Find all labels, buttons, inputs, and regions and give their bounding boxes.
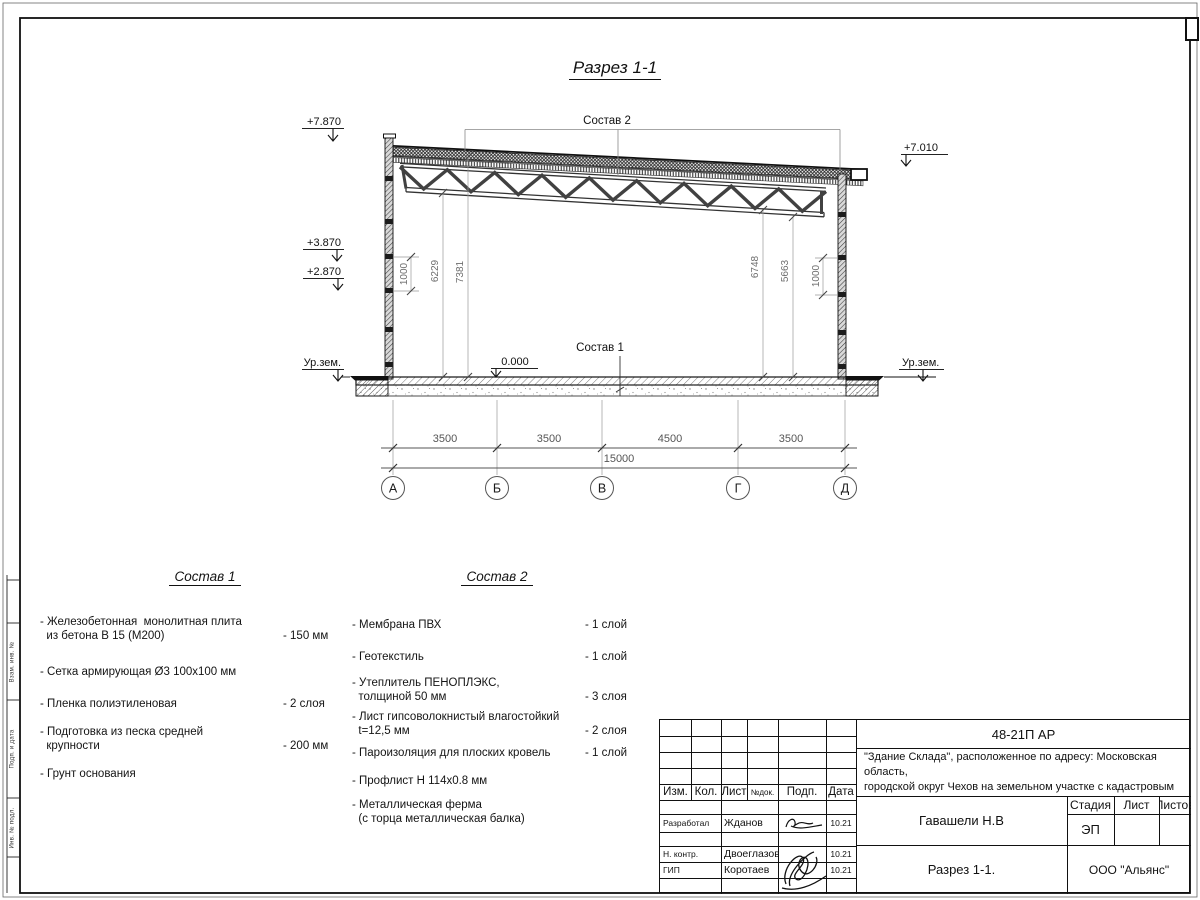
roof-edge-beam	[851, 169, 867, 180]
svg-text:+3.870: +3.870	[307, 237, 341, 249]
callout-floor-label: Состав 1	[576, 342, 624, 354]
strip-label-vzam-inv: Взам. инв. №	[5, 623, 19, 700]
floor-slab	[356, 377, 878, 396]
stage-value: ЭП	[1067, 814, 1114, 845]
company-name: ООО "Альянс"	[1067, 845, 1191, 894]
strip-label-podp-data: Подп. и дата	[5, 700, 19, 798]
list-item: - Утеплитель ПЕНОПЛЭКС, толщиной 50 мм -…	[352, 676, 664, 704]
signer-role: ГИП	[663, 862, 721, 878]
rev-header-data: Дата	[826, 784, 856, 800]
span-dim-3: 4500	[658, 433, 682, 445]
left-wall	[384, 134, 396, 379]
svg-text:+7.870: +7.870	[307, 116, 341, 128]
axis-label-a: А	[389, 482, 398, 496]
drawing-title: Разрез 1-1	[540, 58, 690, 78]
list-item: - Железобетонная монолитная плита из бет…	[40, 615, 350, 643]
rev-header-podp: Подп.	[778, 784, 826, 800]
list-item: - Подготовка из песка средней крупности …	[40, 725, 350, 753]
dim-left-roof-height: 7381	[455, 260, 466, 283]
sheet-title: Разрез 1-1.	[856, 845, 1067, 894]
list-item: - Геотекстиль - 1 слой	[352, 650, 664, 664]
svg-text:Ур.зем.: Ур.зем.	[304, 357, 341, 369]
elevation-ground-left: Ур.зем.	[302, 357, 344, 381]
span-dimension-values: 3500 3500 4500 3500 15000	[433, 433, 803, 465]
dim-right-truss-clear: 6748	[750, 255, 761, 278]
signer-role: Н. контр.	[663, 846, 721, 862]
project-description: "Здание Склада", расположенное по адресу…	[864, 750, 1186, 794]
svg-text:+2.870: +2.870	[307, 266, 341, 278]
list-item: - Профлист Н 114х0.8 мм	[352, 774, 664, 788]
bottom-dimensions: 3500 3500 4500 3500 15000 А Б В Г Д	[381, 400, 857, 500]
dim-left-truss-clear: 6229	[430, 259, 441, 282]
corner-stamp-box	[1186, 18, 1198, 40]
elevation-top-left: +7.870	[302, 116, 344, 141]
list-item: - Лист гипсоволокнистый влагостойкий t=1…	[352, 710, 664, 738]
axis-label-g: Г	[735, 482, 742, 496]
axis-label-b: Б	[493, 482, 501, 496]
dim-right-wall-panel: 1000	[811, 264, 822, 287]
span-dim-1: 3500	[433, 433, 457, 445]
rev-header-izm: Изм.	[660, 784, 691, 800]
rev-header-kol: Кол.	[691, 784, 721, 800]
svg-text:Ур.зем.: Ур.зем.	[902, 357, 939, 369]
svg-text:+7.010: +7.010	[904, 142, 938, 154]
callout-roof-label: Состав 2	[583, 115, 631, 127]
right-wall	[838, 174, 846, 379]
signer-role: Разработал	[663, 814, 721, 832]
signer-name: Двоеглазов	[724, 846, 778, 862]
total-dim: 15000	[604, 453, 635, 465]
signature-razrabotal	[782, 815, 826, 833]
signature-gip	[776, 844, 832, 892]
drawing-title-text: Разрез 1-1	[569, 58, 661, 80]
elevation-top-right: +7.010	[901, 142, 948, 166]
signer-date: 10.21	[826, 814, 856, 832]
list-item: - Пленка полиэтиленовая - 2 слоя	[40, 697, 350, 711]
project-code: 48-21П АР	[856, 720, 1191, 748]
list-item: - Грунт основания	[40, 767, 350, 781]
rev-header-list: Лист	[721, 784, 747, 800]
approver-name: Гавашели Н.В	[856, 796, 1067, 845]
dim-right-ceiling: 5663	[780, 259, 791, 282]
composition-list-2: Состав 2 - Мембрана ПВХ - 1 слой - Геоте…	[352, 570, 664, 830]
axis-label-v: В	[598, 482, 606, 496]
rev-header-ndoc: №док.	[747, 784, 778, 800]
elevation-floor-zero: 0.000	[491, 356, 538, 377]
composition-1-title: Состав 1	[110, 570, 300, 584]
list-item: - Сетка армирующая Ø3 100х100 мм	[40, 665, 350, 679]
axis-label-d: Д	[841, 482, 850, 496]
sheet-label: Лист	[1114, 796, 1159, 814]
drawing-sheet: Состав 2 Состав 1 +7.870 +3.870 +2.870 У…	[0, 0, 1200, 900]
span-dim-2: 3500	[537, 433, 561, 445]
elevation-left-upper: +3.870	[303, 237, 344, 261]
stage-label: Стадия	[1067, 796, 1114, 814]
title-block: Изм. Кол. Лист №док. Подп. Дата Разработ…	[659, 719, 1190, 893]
elevation-left-lower: +2.870	[303, 266, 344, 290]
strip-label-inv-podl: Инв. № подл.	[5, 798, 19, 857]
sheets-label: Листов	[1159, 796, 1191, 814]
list-item: - Металлическая ферма (с торца металличе…	[352, 798, 664, 826]
signer-name: Коротаев	[724, 862, 778, 878]
span-dim-4: 3500	[779, 433, 803, 445]
svg-text:0.000: 0.000	[501, 356, 529, 368]
dim-left-wall-panel: 1000	[399, 262, 410, 285]
signer-name: Жданов	[724, 814, 778, 832]
composition-2-title: Состав 2	[402, 570, 592, 584]
composition-list-1: Состав 1 - Железобетонная монолитная пли…	[40, 570, 350, 800]
list-item: - Мембрана ПВХ - 1 слой	[352, 618, 664, 632]
list-item: - Пароизоляция для плоских кровель - 1 с…	[352, 746, 664, 760]
axis-bubbles: А Б В Г Д	[382, 477, 857, 500]
